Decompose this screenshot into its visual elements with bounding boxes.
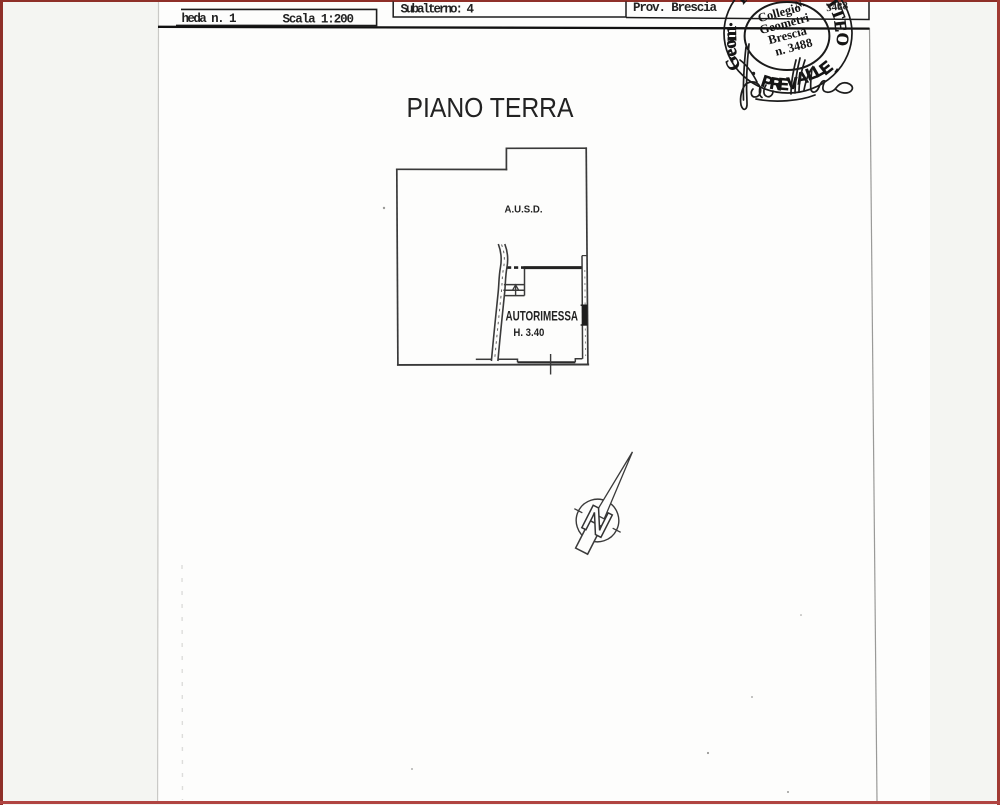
svg-text:A.U.S.D.: A.U.S.D. (505, 204, 543, 216)
svg-text:N.: N. (794, 0, 807, 11)
svg-text:Prov. Brescia: Prov. Brescia (633, 1, 717, 15)
svg-text:3488: 3488 (826, 0, 850, 14)
svg-text:PIANO TERRA: PIANO TERRA (407, 92, 575, 123)
svg-text:H. 3.40: H. 3.40 (513, 327, 544, 339)
svg-text:Scala 1:200: Scala 1:200 (283, 12, 355, 26)
svg-text:AUTORIMESSA: AUTORIMESSA (506, 308, 579, 324)
svg-text:P: P (734, 0, 752, 7)
svg-text:heda n. 1: heda n. 1 (182, 12, 237, 26)
svg-text:O: O (832, 32, 852, 47)
svg-text:Subalterno: 4: Subalterno: 4 (401, 3, 475, 17)
svg-text:m: m (720, 26, 740, 41)
svg-text:.: . (717, 20, 736, 27)
svg-text:E: E (830, 19, 850, 33)
